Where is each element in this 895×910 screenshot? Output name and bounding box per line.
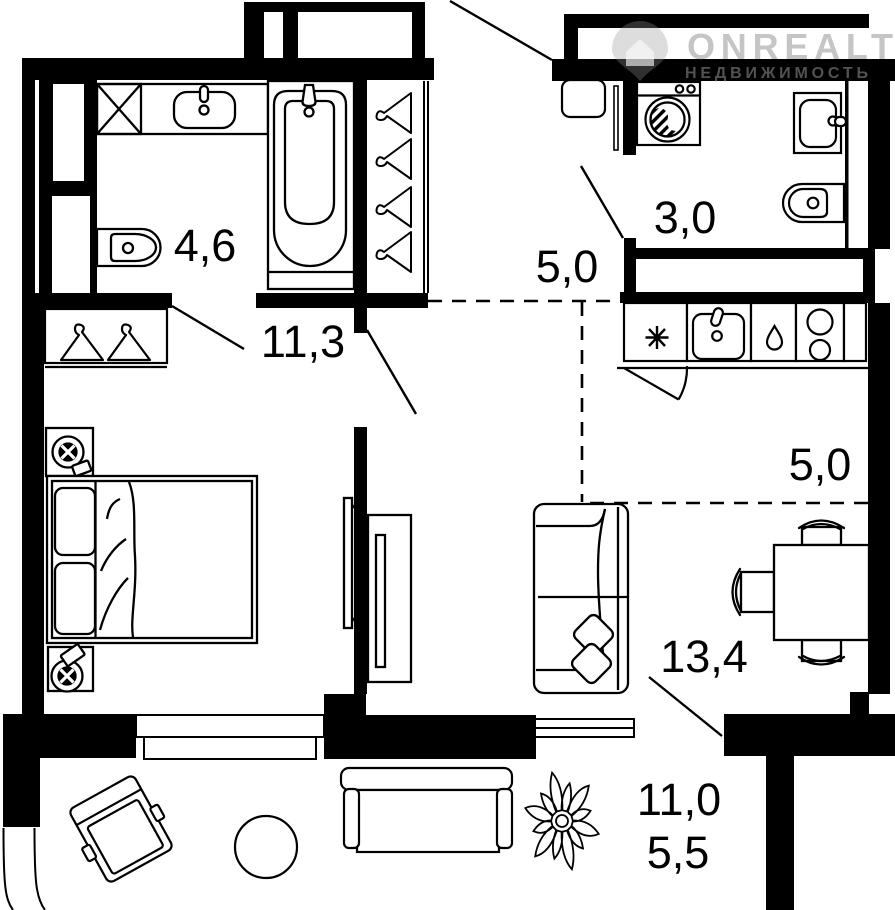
svg-text:13,4: 13,4 [660, 631, 748, 682]
svg-text:3,0: 3,0 [654, 192, 717, 243]
svg-text:11,0: 11,0 [637, 774, 721, 825]
svg-text:5,5: 5,5 [647, 827, 710, 878]
svg-text:11,3: 11,3 [261, 316, 345, 367]
svg-text:4,6: 4,6 [174, 220, 237, 271]
svg-text:5,0: 5,0 [536, 241, 599, 292]
svg-text:5,0: 5,0 [789, 439, 852, 490]
